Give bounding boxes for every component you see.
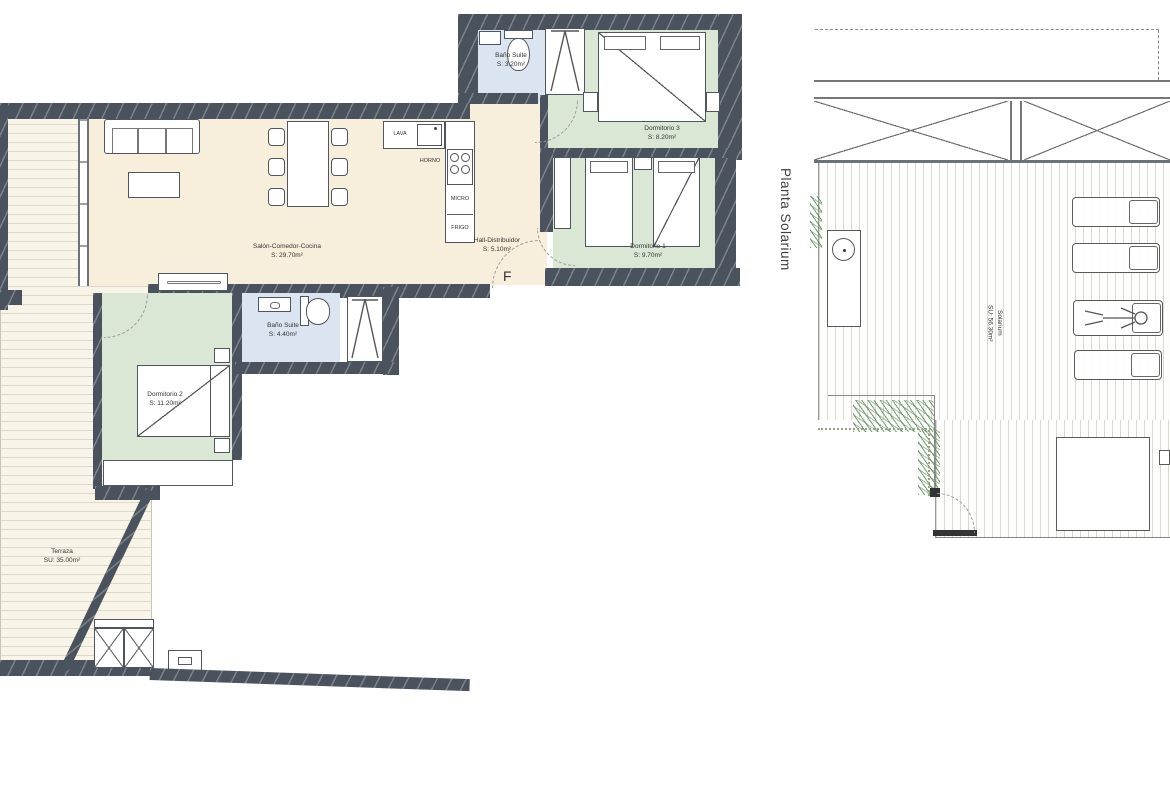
pergola-x-panel <box>1024 101 1170 160</box>
outdoor-shower-dot <box>843 249 846 252</box>
pillow <box>660 36 700 50</box>
kitchen-label-frigo: FRIGO <box>445 225 475 231</box>
tv-cabinet <box>158 273 228 291</box>
room-area: SU: 35.00m² <box>44 557 81 564</box>
sofa <box>104 119 200 154</box>
dining-chair <box>268 188 285 206</box>
room-label-bano-suite-2: Baño Suite S: 4.40m² <box>243 321 323 340</box>
pillow <box>604 36 646 50</box>
appliance-divider <box>447 214 473 215</box>
room-name: Dormitorio 3 <box>644 125 679 132</box>
sun-lounger <box>1072 243 1160 273</box>
machine-box <box>94 628 124 668</box>
burner <box>461 153 470 162</box>
washbasin-bowl <box>270 302 280 309</box>
sun-lounger <box>1073 300 1163 336</box>
shower-door-icon <box>348 297 382 361</box>
shower <box>545 28 585 95</box>
pergola-divider <box>1010 101 1022 160</box>
machine-ledge <box>94 619 154 628</box>
wall-segment <box>712 158 736 286</box>
person-icon <box>1075 302 1161 334</box>
roof-edge-line <box>814 80 1170 82</box>
washbasin <box>479 31 501 45</box>
nightstand <box>634 157 652 170</box>
room-label-dormitorio-1: Dormitorio 1 S: 9.70m² <box>598 242 698 261</box>
wall-segment <box>150 668 470 691</box>
wall-segment <box>232 293 242 460</box>
wall-segment <box>458 14 742 30</box>
kitchen-label-micro: MICRO <box>445 196 475 202</box>
room-name: Hall-Distribuidor <box>474 237 520 244</box>
nightstand <box>214 438 230 453</box>
washbasin <box>258 297 291 312</box>
entry-marker-f: F <box>503 268 512 284</box>
pillow <box>658 161 695 173</box>
dining-table <box>287 121 329 207</box>
machine-box <box>124 628 154 668</box>
room-label-solarium: Solarium SU: 56.30m² <box>985 283 1004 363</box>
plan-title: Planta Solarium <box>778 168 793 288</box>
dining-chair <box>331 188 348 206</box>
floor-plan-canvas: Terraza SU: 35.00m² Baño Suite S: 3.20m² <box>0 0 1170 785</box>
burner <box>450 153 459 162</box>
meter-box-inner <box>178 657 192 665</box>
wall-segment <box>93 293 102 489</box>
pergola-band <box>814 97 1170 163</box>
room-label-dormitorio-2: Dormitorio 2 S: 11.20m² <box>115 390 215 409</box>
dining-chair <box>268 128 285 146</box>
dining-chair <box>331 158 348 176</box>
room-area: S: 4.40m² <box>269 331 297 338</box>
shower-door-icon <box>546 29 584 94</box>
sun-lounger <box>1074 350 1162 380</box>
wall-segment <box>458 93 538 104</box>
room-name: Terraza <box>51 548 73 555</box>
room-name: Dormitorio 1 <box>630 243 665 250</box>
roof-dashed-outline <box>815 29 1159 32</box>
room-name: Salón-Comedor-Cocina <box>253 243 321 250</box>
nightstand <box>706 92 720 112</box>
kitchen-label-horno: HORNO <box>416 158 444 164</box>
roof-dashed-outline <box>1158 30 1161 80</box>
room-label-salon: Salón-Comedor-Cocina S: 29.70m² <box>217 242 357 261</box>
room-label-terraza: Terraza SU: 35.00m² <box>10 547 114 566</box>
room-name: Solarium <box>996 310 1003 336</box>
edge-box <box>1159 450 1170 465</box>
room-area: S: 8.20m² <box>648 134 676 141</box>
solarium-table <box>1056 437 1150 531</box>
wall-segment <box>545 268 740 286</box>
room-name: Dormitorio 2 <box>147 391 182 398</box>
room-area: S: 9.70m² <box>634 252 662 259</box>
deck-step-line <box>934 395 935 495</box>
nightstand <box>214 348 230 363</box>
garden-dotted-edge <box>928 430 932 496</box>
glass-wall <box>78 119 89 286</box>
room-name: Baño Suite <box>495 52 527 59</box>
shower <box>347 296 383 362</box>
wall-segment <box>540 150 553 232</box>
burner <box>450 165 459 174</box>
room-area: SU: 56.30m² <box>986 305 993 342</box>
wardrobe <box>103 460 233 486</box>
nightstand <box>583 92 598 112</box>
pergola-x-panel <box>814 101 1008 160</box>
room-area: S: 11.20m² <box>149 400 180 407</box>
wall-segment <box>0 103 8 310</box>
wardrobe <box>554 157 571 229</box>
lounger-backrest <box>1129 246 1158 270</box>
wall-segment <box>8 103 470 119</box>
wall-segment <box>0 290 22 305</box>
kitchen-label-lava: LAVA <box>385 131 415 137</box>
sofa-cushion <box>138 128 166 153</box>
pillow <box>590 161 628 173</box>
plants <box>810 196 822 248</box>
sink-drain-dot <box>434 127 437 130</box>
burner <box>461 165 470 174</box>
wall-segment <box>458 14 478 104</box>
sofa-cushion <box>166 128 193 153</box>
kitchen-sink <box>417 124 442 146</box>
garden-dotted-edge <box>818 428 935 432</box>
room-name: Baño Suite <box>267 322 299 329</box>
coffee-table <box>128 172 180 198</box>
sofa-cushion <box>112 128 138 153</box>
tv-cabinet-slot <box>167 281 221 284</box>
lounger-backrest <box>1131 353 1160 377</box>
wall-segment <box>235 362 399 374</box>
deck-step-line <box>828 395 935 396</box>
room-label-dormitorio-3: Dormitorio 3 S: 8.20m² <box>612 124 712 143</box>
dining-chair <box>268 158 285 176</box>
room-area: S: 3.20m² <box>497 61 525 68</box>
dining-chair <box>331 128 348 146</box>
room-area: S: 29.70m² <box>271 252 303 259</box>
lounger-backrest <box>1129 200 1158 224</box>
room-label-bano-suite-3: Baño Suite S: 3.20m² <box>478 51 544 70</box>
sun-lounger <box>1072 197 1160 227</box>
wall-segment <box>718 14 742 160</box>
